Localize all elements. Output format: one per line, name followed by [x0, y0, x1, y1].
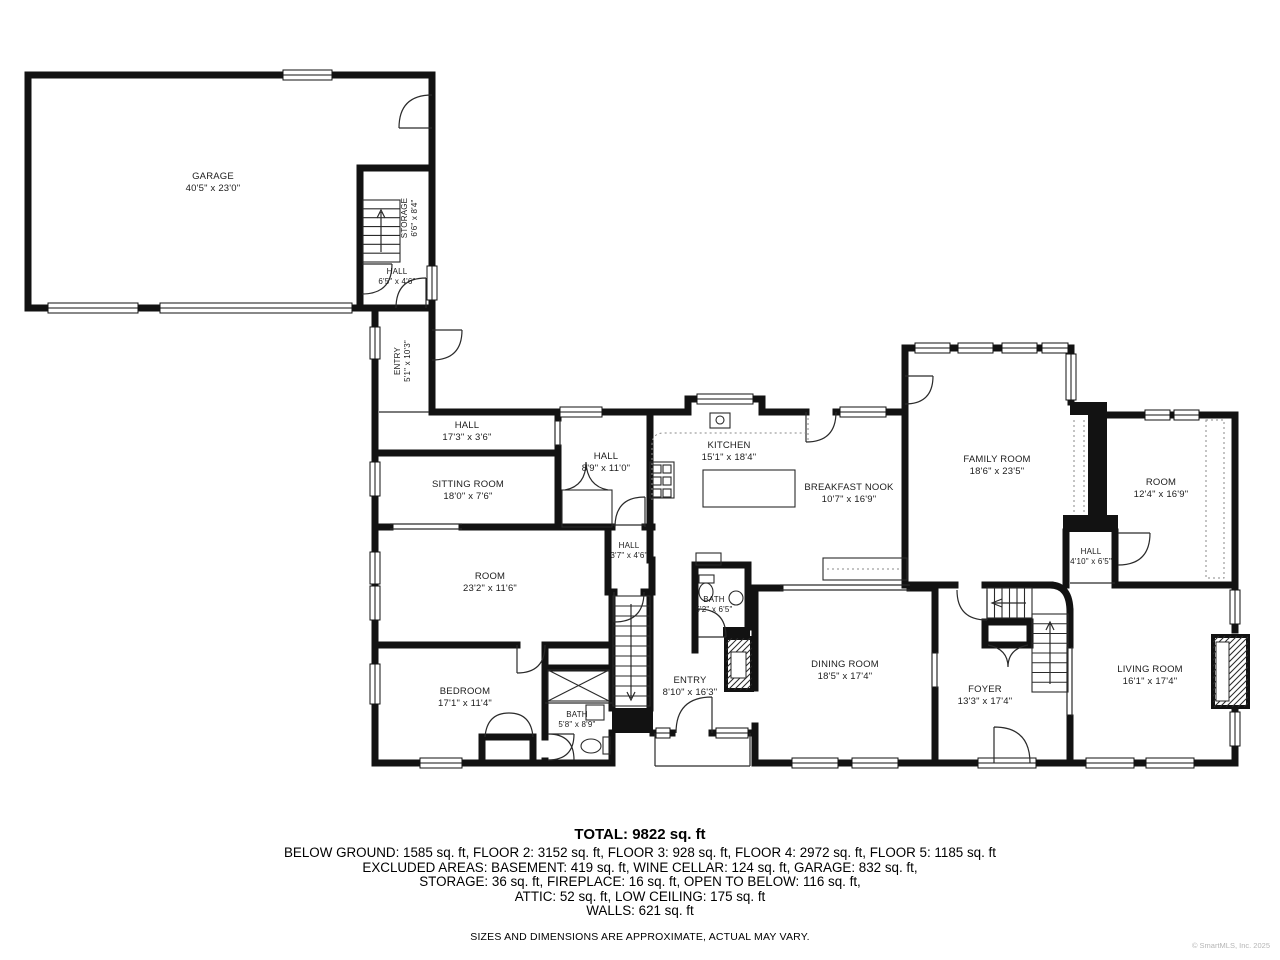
room-label-living-room: LIVING ROOM16'1" x 17'4" — [1117, 664, 1183, 688]
room-label-breakfast-nook: BREAKFAST NOOK10'7" x 16'9" — [804, 482, 893, 506]
footer-area-summary: TOTAL: 9822 sq. ft BELOW GROUND: 1585 sq… — [0, 826, 1280, 943]
room-label-entry-upper: ENTRY5'1" x 10'3" — [393, 340, 413, 382]
floorplan-page: GARAGE40'5" x 23'0" STORAGE6'6" x 8'4" H… — [0, 0, 1280, 960]
disclaimer-text: SIZES AND DIMENSIONS ARE APPROXIMATE, AC… — [0, 931, 1280, 943]
footer-line-attic: ATTIC: 52 sq. ft, LOW CEILING: 175 sq. f… — [0, 890, 1280, 905]
room-label-entry-lower: ENTRY8'10" x 16'3" — [663, 675, 718, 699]
copyright-text: © SmartMLS, Inc. 2025 — [1192, 941, 1270, 950]
room-label-garage: GARAGE40'5" x 23'0" — [186, 171, 241, 195]
room-label-sitting-room: SITTING ROOM18'0" x 7'6" — [432, 479, 504, 503]
room-label-storage: STORAGE6'6" x 8'4" — [400, 198, 420, 238]
room-label-kitchen: KITCHEN15'1" x 18'4" — [702, 440, 757, 464]
footer-line-floors: BELOW GROUND: 1585 sq. ft, FLOOR 2: 3152… — [0, 846, 1280, 861]
room-label-dining-room: DINING ROOM18'5" x 17'4" — [811, 659, 879, 683]
room-label-bath-52: BATH5'2" x 6'5" — [695, 595, 732, 615]
footer-line-walls: WALLS: 621 sq. ft — [0, 904, 1280, 919]
floorplan-canvas — [0, 0, 1280, 820]
room-label-hall-410: HALL4'10" x 6'5" — [1070, 547, 1112, 567]
room-label-hall-garage: HALL6'5" x 4'6" — [378, 267, 415, 287]
room-label-hall-long: HALL17'3" x 3'6" — [442, 420, 491, 444]
room-label-bath-58: BATH5'8" x 8'9" — [558, 710, 595, 730]
room-label-hall-center: HALL8'9" x 11'0" — [582, 451, 631, 475]
room-label-room-right: ROOM12'4" x 16'9" — [1134, 477, 1189, 501]
footer-line-storage: STORAGE: 36 sq. ft, FIREPLACE: 16 sq. ft… — [0, 875, 1280, 890]
total-area-text: TOTAL: 9822 sq. ft — [0, 826, 1280, 843]
room-label-foyer: FOYER13'3" x 17'4" — [958, 684, 1013, 708]
room-label-bedroom: BEDROOM17'1" x 11'4" — [438, 686, 492, 710]
room-label-room-big: ROOM23'2" x 11'6" — [463, 571, 517, 595]
footer-line-excluded: EXCLUDED AREAS: BASEMENT: 419 sq. ft, WI… — [0, 861, 1280, 876]
room-label-family-room: FAMILY ROOM18'6" x 23'5" — [963, 454, 1030, 478]
room-label-hall-37: HALL3'7" x 4'6" — [610, 541, 647, 561]
